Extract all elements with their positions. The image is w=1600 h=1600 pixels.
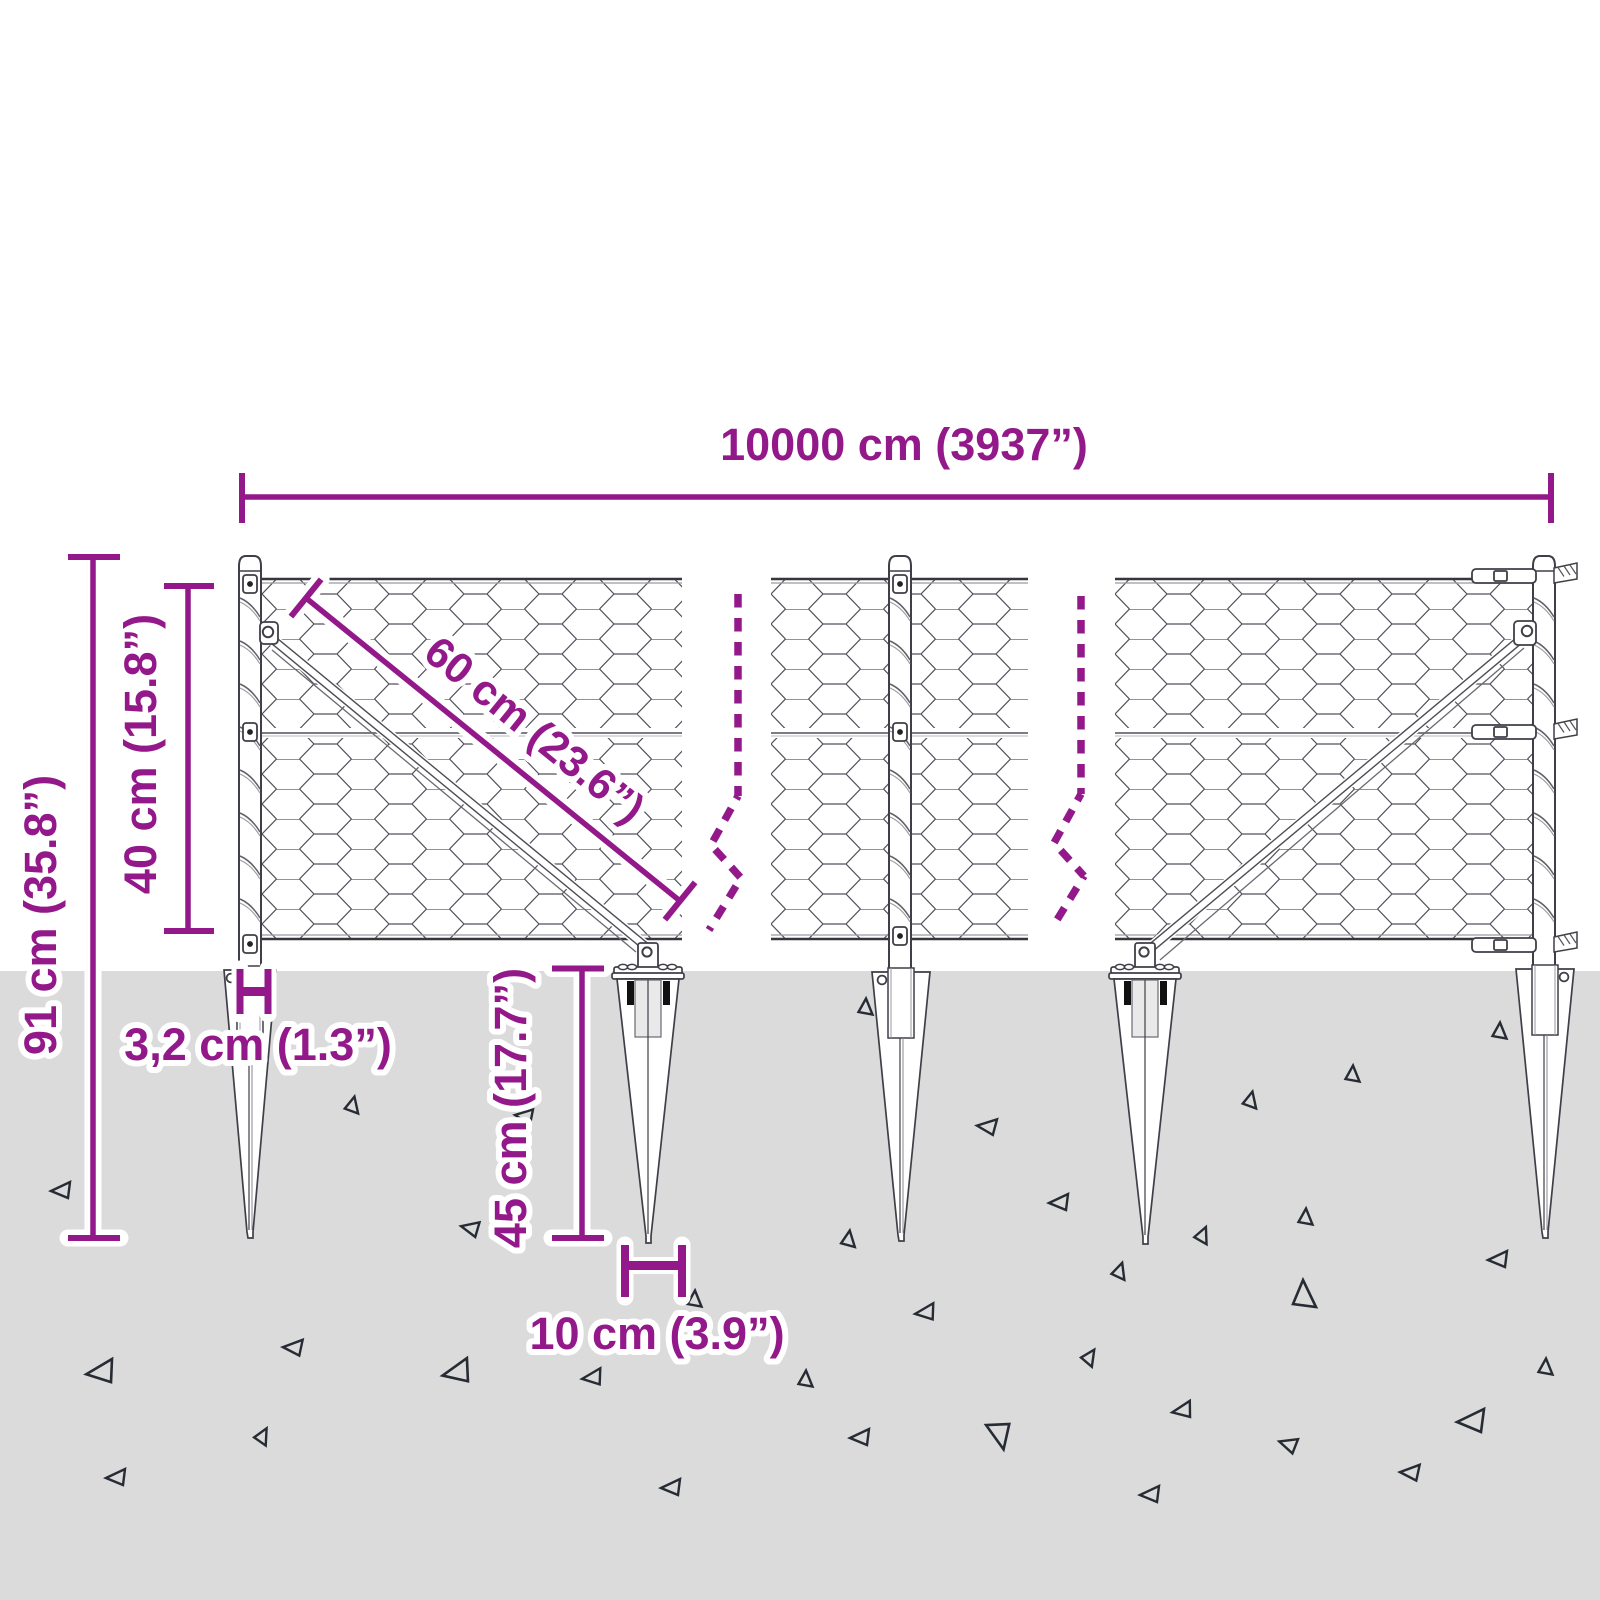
svg-text:3,2 cm (1.3”): 3,2 cm (1.3”) [124, 1019, 392, 1070]
svg-text:45 cm (17.7”): 45 cm (17.7”) [485, 968, 536, 1248]
svg-text:10 cm (3.9”): 10 cm (3.9”) [529, 1308, 784, 1359]
svg-text:91 cm (35.8”): 91 cm (35.8”) [15, 775, 66, 1055]
svg-text:40 cm (15.8”): 40 cm (15.8”) [115, 614, 166, 894]
svg-text:10000 cm (3937”): 10000 cm (3937”) [720, 419, 1088, 470]
